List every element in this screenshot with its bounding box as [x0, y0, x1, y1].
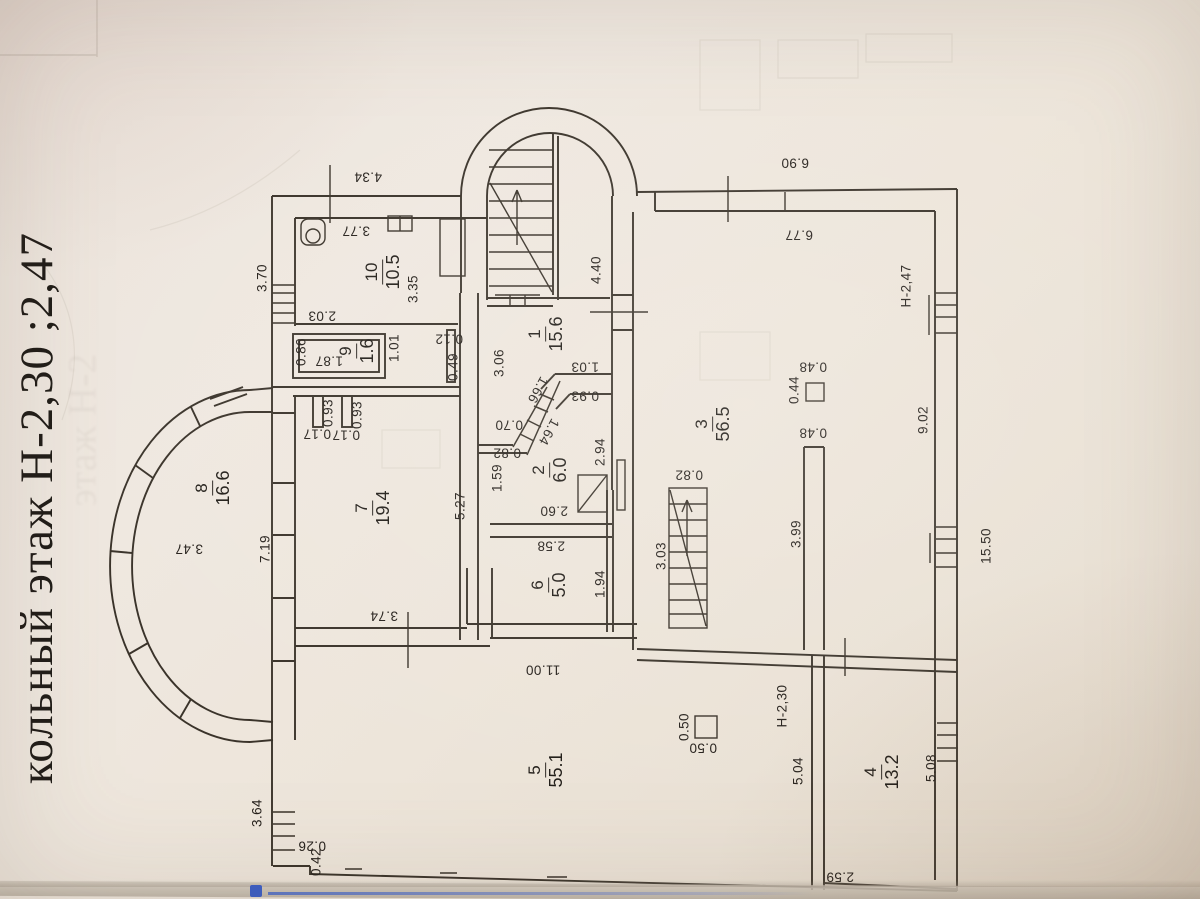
room-number: 5 [526, 762, 546, 777]
dimension-label: 0.82 [493, 446, 521, 461]
toilet-icon [301, 219, 325, 245]
dimension-label: 6.90 [781, 156, 809, 171]
blue-object-under-paper [250, 885, 262, 897]
dimension-label: 0.17 [332, 428, 360, 443]
dimension-label: 3.99 [789, 520, 804, 548]
dimension-label: 0.12 [435, 332, 463, 347]
floor-title: кольный этаж Н-2,30 ;2,47 [10, 232, 64, 784]
room-label: 26.0 [530, 457, 570, 482]
room-number: 1 [526, 326, 546, 341]
dimension-label: 3.77 [342, 224, 370, 239]
room-label: 1010.5 [363, 254, 403, 289]
dimension-label: 0.82 [675, 468, 703, 483]
room-area: 55.1 [546, 752, 566, 787]
dimension-label: 0.86 [294, 338, 309, 366]
dimension-label: 2.58 [537, 539, 565, 554]
dimension-label: 0.50 [689, 741, 717, 756]
room-area: 16.6 [213, 470, 233, 505]
window-symbols [272, 285, 958, 850]
dimension-label: 0.44 [787, 376, 802, 404]
blue-line-under-paper [268, 892, 813, 895]
dimension-label: 7.19 [258, 535, 273, 563]
dimension-label: 0.70 [495, 418, 523, 433]
dimension-label: 0.48 [799, 360, 827, 375]
column [695, 716, 717, 738]
staircase-main [489, 150, 553, 306]
dimension-label: 6.77 [785, 228, 813, 243]
dimension-label: 1.01 [387, 334, 402, 362]
staircase-room3 [669, 488, 707, 628]
dimension-label: 0.50 [677, 713, 692, 741]
floor-plan-photo: 4.343.773.703.352.030.861.871.010.120.49… [0, 0, 1200, 899]
room-label: 115.6 [526, 316, 566, 351]
room-number: 9 [337, 343, 357, 358]
up-arrow-icon [682, 500, 692, 556]
room-area: 13.2 [882, 754, 902, 789]
room-label: 91.6 [337, 338, 377, 363]
dimension-label: 3.70 [255, 264, 270, 292]
dimension-label: 11.00 [526, 663, 561, 678]
dimension-label: 0.42 [309, 848, 324, 876]
room-area: 10.5 [383, 254, 403, 289]
room-label: 413.2 [862, 754, 902, 789]
room-area: 6.0 [550, 457, 570, 482]
dimension-label: 5.08 [924, 754, 939, 782]
room-number: 10 [363, 260, 383, 285]
dimension-label: 5.04 [791, 757, 806, 785]
dimension-label: 0.48 [799, 426, 827, 441]
ghost-showthrough [40, 34, 952, 468]
column [806, 383, 824, 401]
bay-window-arc [110, 387, 273, 742]
dimension-label: Н-2,47 [899, 265, 914, 308]
second-sheet-edge [0, 0, 97, 57]
dimension-label: 4.34 [354, 170, 382, 185]
dimension-label: 0.93 [571, 389, 599, 404]
dimension-label: 2.03 [308, 309, 336, 324]
dimension-label: 0.17 [303, 427, 331, 442]
dimension-ticks [330, 165, 845, 877]
room-area: 5.0 [549, 572, 569, 597]
dimension-label: Н-2,30 [775, 685, 790, 728]
room-label: 65.0 [529, 572, 569, 597]
room-area: 1.6 [357, 338, 377, 363]
room-number: 3 [693, 416, 713, 431]
room-number: 6 [529, 577, 549, 592]
dimension-label: 1.59 [490, 464, 505, 492]
dimension-label: 9.02 [916, 406, 931, 434]
dimension-label: 2.60 [540, 504, 568, 519]
room-area: 19.4 [373, 490, 393, 525]
room-number: 7 [353, 500, 373, 515]
dimension-label: 5.27 [453, 492, 468, 520]
room-label: 816.6 [193, 470, 233, 505]
dimension-label: 3.03 [654, 542, 669, 570]
dimension-label: 0.93 [350, 401, 365, 429]
dimension-label: 3.06 [492, 349, 507, 377]
room-number: 2 [530, 462, 550, 477]
room-label: 356.5 [693, 406, 733, 441]
room-label: 719.4 [353, 490, 393, 525]
room-number: 4 [862, 764, 882, 779]
paper-bottom-edge [0, 880, 1200, 887]
dimension-label: 3.47 [175, 542, 203, 557]
dimension-label: 3.64 [250, 799, 265, 827]
dimension-label: 1.03 [571, 360, 599, 375]
room-area: 15.6 [546, 316, 566, 351]
toilet-icon [306, 229, 320, 243]
ghost-floor-title: этаж Н-2 [59, 354, 106, 507]
dimension-label: 15.50 [979, 528, 994, 564]
dimension-label: 0.49 [446, 353, 461, 381]
dimension-label: 3.35 [406, 275, 421, 303]
dimension-label: 3.74 [370, 609, 398, 624]
room-label: 555.1 [526, 752, 566, 787]
dimension-label: 4.40 [589, 256, 604, 284]
dimension-label: 1.94 [593, 570, 608, 598]
room-number: 8 [193, 480, 213, 495]
room-area: 56.5 [713, 406, 733, 441]
dimension-label: 0.93 [321, 399, 336, 427]
dimension-label: 2.94 [593, 438, 608, 466]
